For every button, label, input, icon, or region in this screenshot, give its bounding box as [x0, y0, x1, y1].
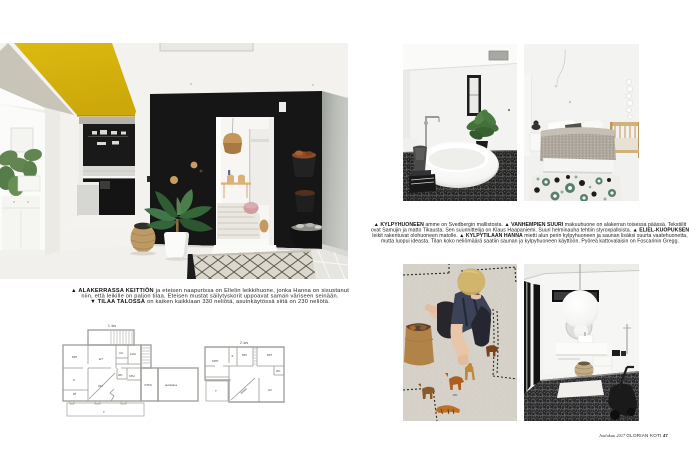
svg-text:KPH: KPH — [212, 359, 218, 363]
svg-text:V/TKN: V/TKN — [144, 383, 152, 387]
svg-text:aula/o: aula/o — [239, 387, 248, 395]
svg-text:autokatos: autokatos — [165, 383, 178, 387]
svg-text:WC: WC — [276, 369, 280, 373]
svg-text:2. krs: 2. krs — [240, 341, 248, 345]
svg-text:MH: MH — [267, 353, 272, 357]
svg-text:ET: ET — [99, 357, 103, 361]
svg-text:VH: VH — [119, 351, 123, 355]
svg-text:KHH: KHH — [130, 352, 136, 356]
svg-text:KPH: KPH — [129, 374, 135, 378]
svg-text:WC: WC — [118, 373, 123, 377]
svg-text:RT: RT — [73, 392, 77, 396]
svg-text:1. krs: 1. krs — [108, 324, 116, 328]
svg-text:T: T — [215, 389, 217, 393]
svg-text:AV: AV — [268, 388, 273, 392]
svg-text:K: K — [73, 378, 76, 382]
svg-text:S: S — [232, 354, 234, 358]
svg-text:MH: MH — [72, 355, 77, 359]
svg-text:T: T — [103, 410, 105, 414]
svg-text:MH: MH — [242, 353, 247, 357]
svg-text:OH: OH — [98, 384, 103, 388]
